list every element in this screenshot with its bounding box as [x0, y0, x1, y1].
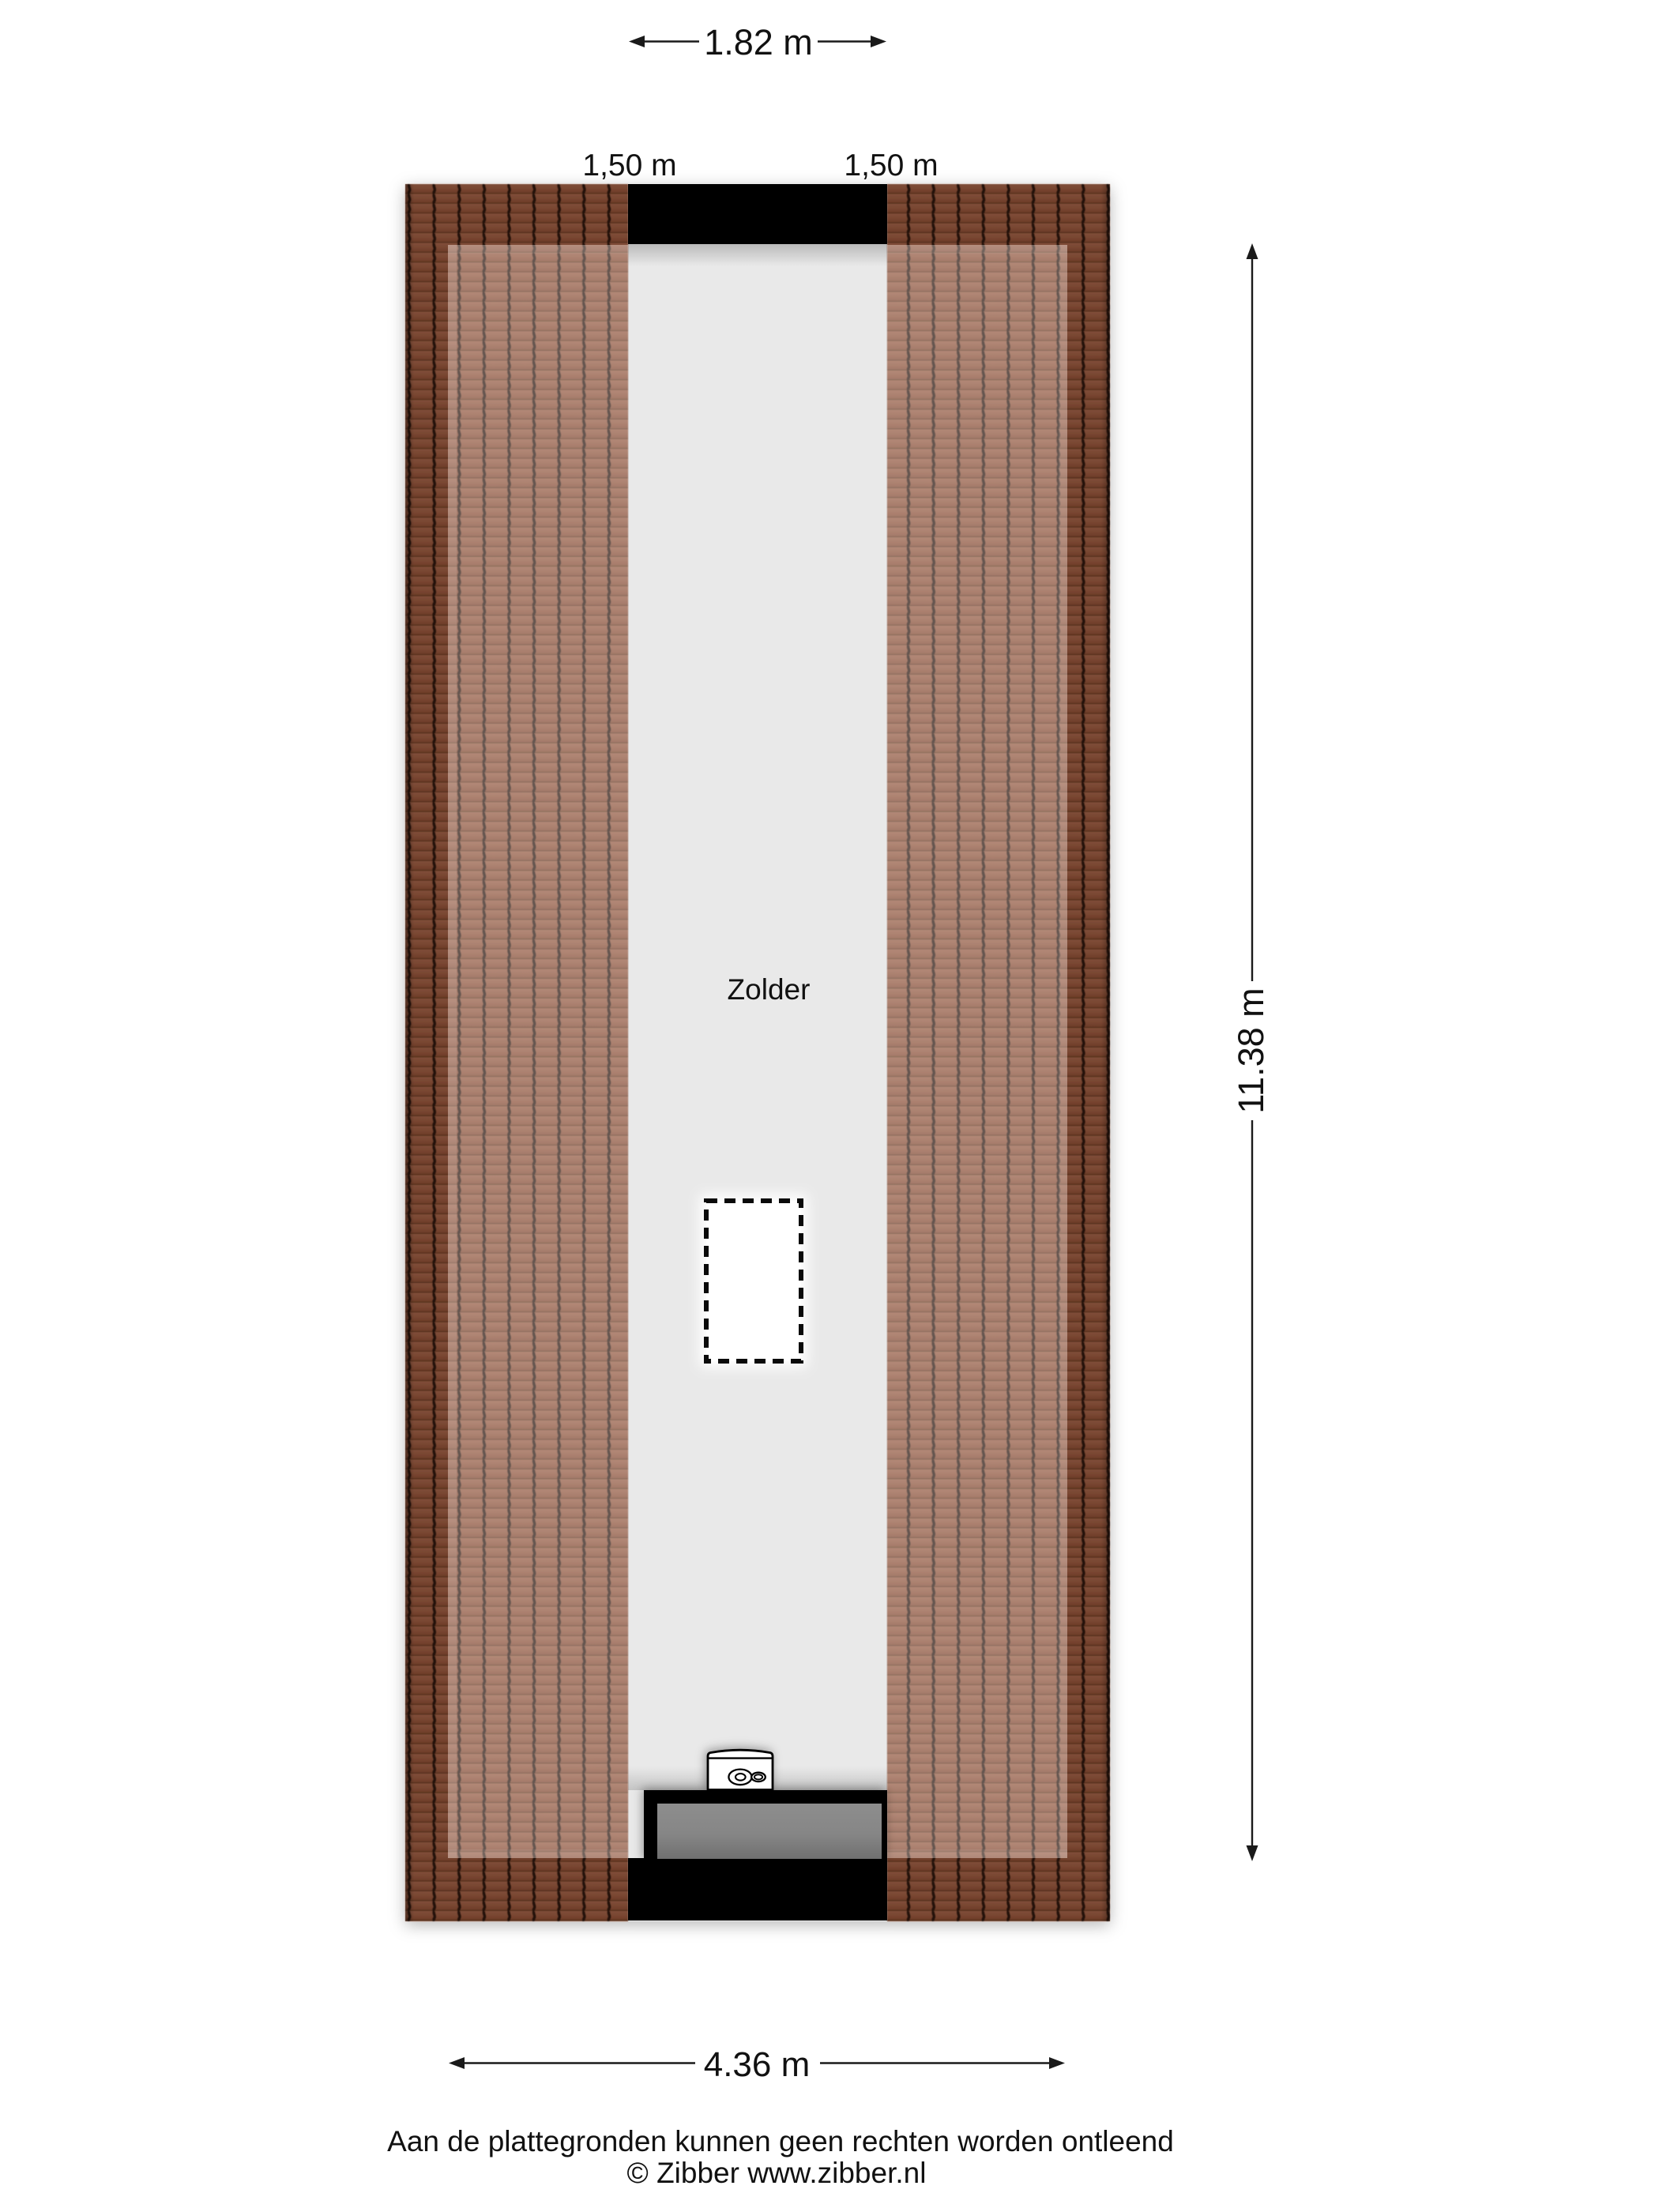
- svg-text:11.38 m: 11.38 m: [1231, 987, 1271, 1113]
- svg-text:1.82 m: 1.82 m: [704, 22, 813, 62]
- svg-text:Zolder: Zolder: [728, 973, 811, 1006]
- svg-text:4.36 m: 4.36 m: [704, 2045, 811, 2084]
- svg-text:Aan de plattegronden kunnen ge: Aan de plattegronden kunnen geen rechten…: [387, 2125, 1174, 2157]
- svg-text:1,50 m: 1,50 m: [582, 149, 676, 182]
- svg-text:1,50 m: 1,50 m: [844, 149, 938, 182]
- svg-text:© Zibber www.zibber.nl: © Zibber www.zibber.nl: [627, 2157, 927, 2189]
